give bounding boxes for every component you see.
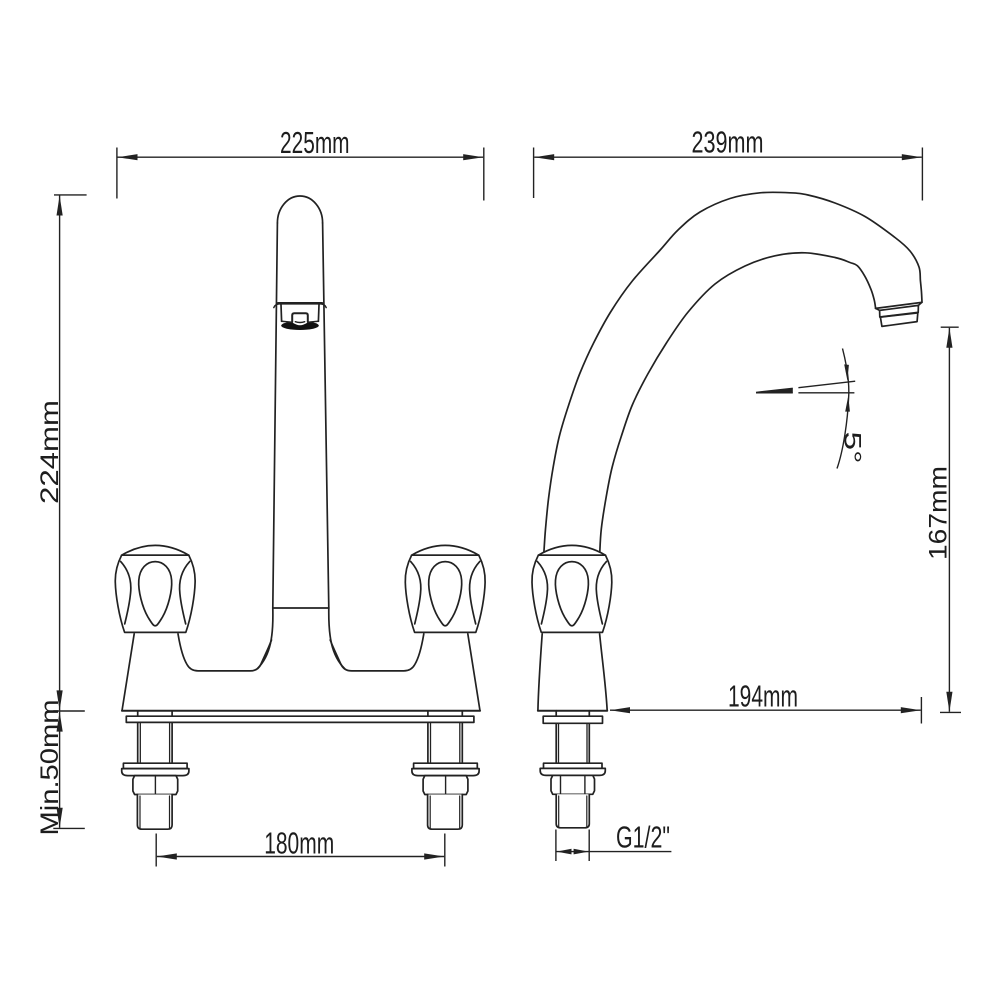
svg-text:G1/2": G1/2" [616,821,670,855]
svg-text:180mm: 180mm [264,827,334,861]
svg-text:5°: 5° [839,432,866,464]
svg-text:194mm: 194mm [728,680,798,714]
svg-text:167mm: 167mm [925,466,953,560]
svg-text:239mm: 239mm [692,126,764,160]
svg-text:224mm: 224mm [36,400,64,504]
svg-text:Min.50mm: Min.50mm [36,700,64,836]
svg-text:225mm: 225mm [280,126,350,160]
